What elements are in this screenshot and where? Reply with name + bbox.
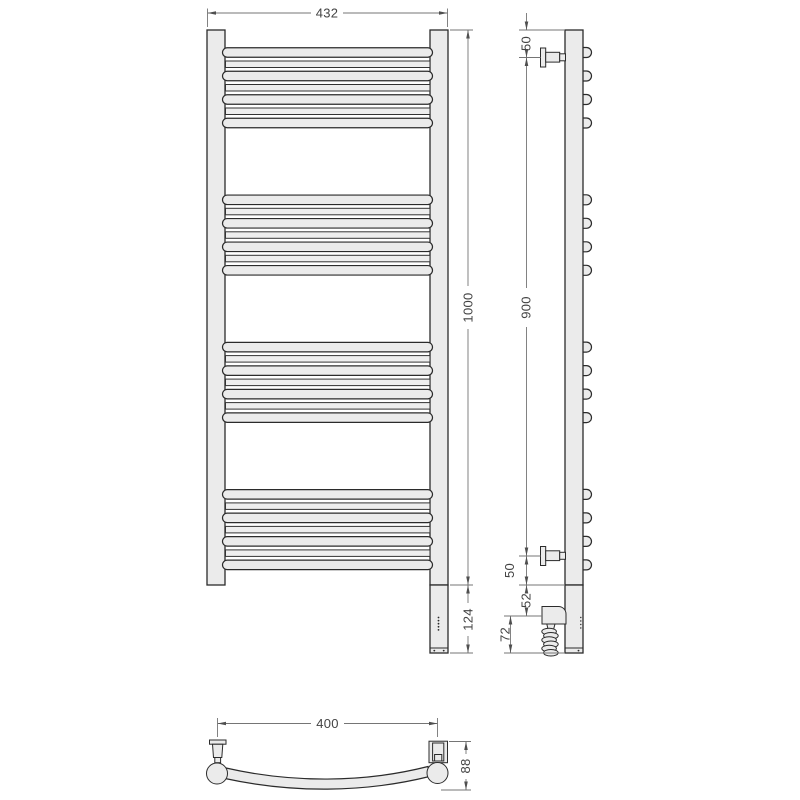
thin-bar	[226, 61, 431, 68]
side-heater-housing	[565, 585, 583, 653]
towel-bar	[223, 560, 433, 570]
dim-label-900: 900	[519, 296, 534, 319]
side-led-dot	[580, 624, 581, 625]
towel-bar	[223, 195, 433, 205]
heating-element	[542, 607, 566, 625]
dim-label-1000: 1000	[461, 292, 476, 322]
dim-label-432: 432	[316, 6, 339, 21]
side-led-dot	[580, 627, 581, 628]
bottom-view-left-bracket	[207, 740, 228, 784]
bottom-view-right-bracket	[427, 741, 448, 783]
dim-label-400: 400	[316, 716, 339, 731]
dim-label-88: 88	[458, 758, 473, 773]
towel-bar	[223, 48, 433, 58]
led-dot	[438, 629, 440, 631]
towel-bar	[223, 95, 433, 105]
thin-bar	[226, 232, 431, 239]
thin-bars	[226, 61, 431, 556]
towel-bar	[223, 242, 433, 252]
thin-bar	[226, 503, 431, 510]
dim-label-50-bottom: 50	[502, 563, 517, 578]
dimension-housing-to-element: 52	[504, 585, 542, 616]
front-view	[207, 30, 448, 653]
technical-drawing: 432 1000 124 50 900 50	[0, 0, 800, 800]
left-rail	[207, 30, 225, 585]
dimension-overall-height: 1000	[450, 30, 476, 585]
towel-bar	[223, 118, 433, 128]
dim-label-124: 124	[461, 608, 476, 631]
led-dot	[438, 620, 440, 622]
bottom-view	[207, 740, 449, 789]
towel-bar	[223, 366, 433, 376]
dimension-overall-width: 432	[208, 6, 448, 28]
towel-bar	[223, 389, 433, 399]
thin-bar	[226, 379, 431, 386]
right-rail	[430, 30, 448, 585]
thin-bar	[226, 108, 431, 115]
thin-bar	[226, 208, 431, 215]
thin-bar	[226, 85, 431, 92]
towel-bar	[223, 266, 433, 276]
led-dot	[438, 623, 440, 625]
towel-bar	[223, 413, 433, 423]
dim-label-52: 52	[519, 593, 534, 608]
towel-bars	[223, 48, 433, 570]
dimension-housing-height: 124	[450, 585, 476, 653]
towel-bar	[223, 71, 433, 81]
dim-label-50-top: 50	[519, 36, 534, 51]
radiator-drawing-canvas: 432 1000 124 50 900 50	[0, 0, 800, 800]
wall-bracket-bottom	[541, 547, 566, 566]
housing-screw	[433, 650, 435, 652]
thin-bar	[226, 550, 431, 557]
side-housing-screw	[578, 650, 580, 652]
towel-bar	[223, 342, 433, 352]
wall-bracket-top	[541, 48, 566, 67]
side-view	[541, 30, 592, 656]
dimension-bracket-span: 900	[519, 58, 541, 557]
heater-housing	[430, 585, 448, 653]
thin-bar	[226, 255, 431, 261]
led-dot	[438, 617, 440, 619]
side-led-dot	[580, 620, 581, 621]
dim-label-72: 72	[498, 627, 513, 642]
towel-bar	[223, 537, 433, 547]
bracket-knob	[207, 763, 228, 784]
thin-bar	[226, 403, 431, 410]
side-rail	[565, 30, 583, 585]
thin-bar	[226, 356, 431, 363]
bracket-knob	[427, 763, 448, 784]
power-cable-coil	[542, 628, 558, 656]
towel-bar	[223, 490, 433, 500]
dimension-bar-centers: 400	[218, 716, 438, 737]
towel-bar	[223, 513, 433, 523]
thin-bar	[226, 526, 431, 533]
side-led-dot	[580, 617, 581, 618]
housing-screw	[443, 650, 445, 652]
towel-bar	[223, 219, 433, 229]
led-dot	[438, 626, 440, 628]
curved-towel-bar	[225, 767, 430, 790]
